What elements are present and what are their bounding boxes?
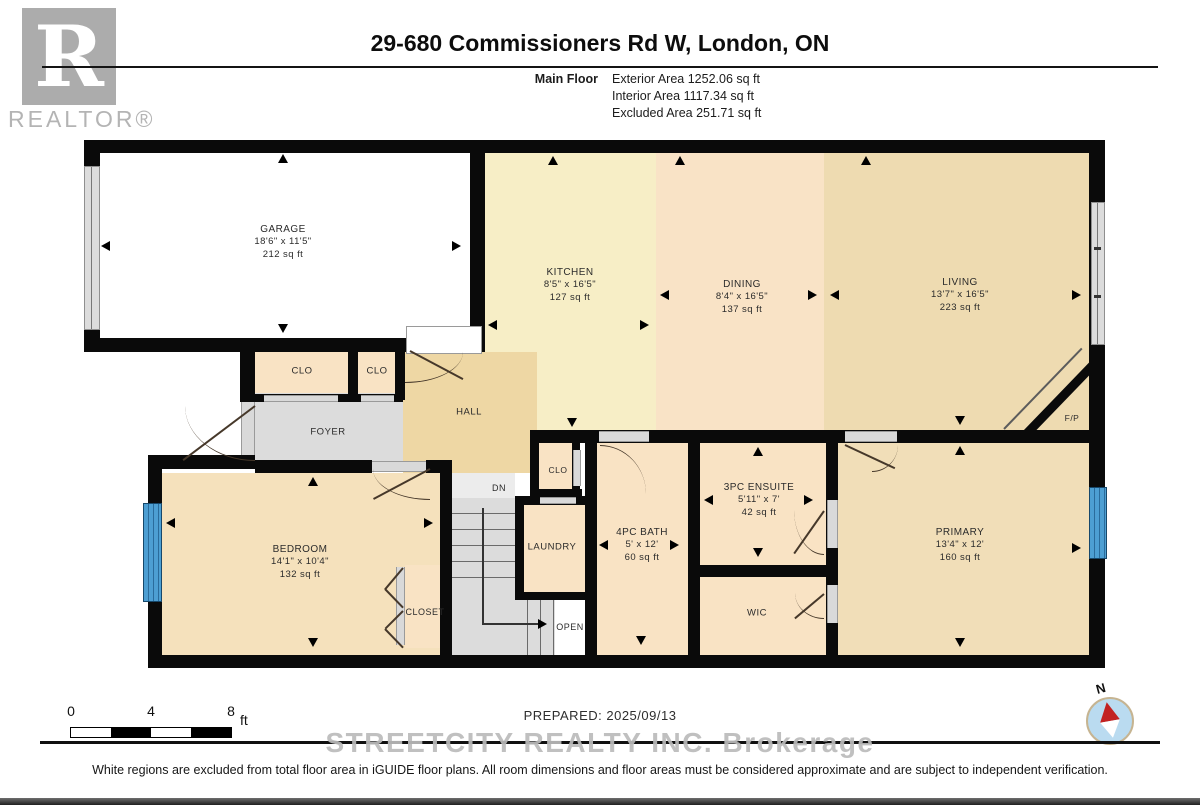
front-door-arc bbox=[185, 406, 255, 461]
dimension-arrow bbox=[675, 156, 685, 165]
dimension-arrow bbox=[704, 495, 713, 505]
dimension-arrow bbox=[278, 324, 288, 333]
dimension-arrow bbox=[670, 540, 679, 550]
dimension-arrow bbox=[808, 290, 817, 300]
header-divider bbox=[42, 66, 1158, 68]
label-foyer: FOYER bbox=[310, 427, 345, 438]
wall bbox=[440, 460, 452, 655]
dimension-arrow bbox=[955, 638, 965, 647]
realtor-logo-text: REALTOR® bbox=[8, 106, 155, 133]
living-window-line bbox=[1097, 203, 1098, 344]
dimension-arrow bbox=[955, 416, 965, 425]
dimension-arrow bbox=[636, 636, 646, 645]
room-label-primary: PRIMARY 13'4" x 12' 160 sq ft bbox=[936, 526, 985, 564]
dimension-arrow bbox=[424, 518, 433, 528]
excluded-area: Excluded Area 251.71 sq ft bbox=[612, 106, 761, 120]
closet-door-opening bbox=[361, 395, 394, 402]
living-window-tick bbox=[1094, 247, 1101, 250]
room-label-dining: DINING 8'4" x 16'5" 137 sq ft bbox=[716, 278, 768, 316]
label-closet: CLOSET bbox=[405, 607, 444, 617]
ensuite-door-opening bbox=[827, 500, 838, 548]
dimension-arrow bbox=[308, 638, 318, 647]
primary-window bbox=[1089, 487, 1107, 559]
bath-door-opening bbox=[599, 431, 649, 442]
dimension-arrow bbox=[1072, 543, 1081, 553]
label-clo3: CLO bbox=[549, 465, 568, 475]
interior-area: Interior Area 1117.34 sq ft bbox=[612, 89, 754, 103]
stairs-direction-line bbox=[482, 508, 484, 625]
label-laundry: LAUNDRY bbox=[528, 542, 577, 553]
room-label-garage: GARAGE 18'6" x 11'5" 212 sq ft bbox=[254, 223, 311, 261]
room-label-kitchen: KITCHEN 8'5" x 16'5" 127 sq ft bbox=[544, 266, 596, 304]
wall bbox=[255, 460, 372, 473]
wall bbox=[515, 505, 524, 592]
clo-door-opening bbox=[573, 450, 581, 486]
label-clo2: CLO bbox=[366, 366, 387, 377]
label-wic: WIC bbox=[747, 608, 767, 619]
dimension-arrow bbox=[548, 156, 558, 165]
label-clo1: CLO bbox=[291, 366, 312, 377]
room-label-living: LIVING 13'7" x 16'5" 223 sq ft bbox=[931, 276, 989, 314]
dimension-arrow bbox=[488, 320, 497, 330]
wall bbox=[826, 443, 838, 655]
label-hall: HALL bbox=[456, 407, 482, 418]
dimension-arrow bbox=[804, 495, 813, 505]
laundry-door-opening bbox=[540, 497, 576, 504]
wall bbox=[688, 443, 700, 655]
dimension-arrow bbox=[861, 156, 871, 165]
stairs-direction-line bbox=[482, 623, 538, 625]
floor-label: Main Floor bbox=[450, 72, 598, 86]
dimension-arrow bbox=[101, 241, 110, 251]
stairs-direction-arrow bbox=[538, 619, 547, 629]
wall bbox=[700, 565, 826, 577]
wall bbox=[148, 655, 1105, 668]
wall bbox=[395, 352, 405, 400]
dimension-arrow bbox=[599, 540, 608, 550]
prepared-date: PREPARED: 2025/09/13 bbox=[0, 708, 1200, 723]
room-label-ensuite: 3PC ENSUITE 5'11" x 7' 42 sq ft bbox=[724, 481, 795, 519]
garage-entry-landing bbox=[406, 326, 482, 354]
label-open: OPEN bbox=[556, 622, 584, 632]
room-label-bath: 4PC BATH 5' x 12' 60 sq ft bbox=[616, 526, 668, 564]
dimension-arrow bbox=[955, 446, 965, 455]
wall bbox=[84, 140, 100, 168]
garage-door-line bbox=[91, 167, 92, 329]
dimension-arrow bbox=[660, 290, 669, 300]
dimension-arrow bbox=[753, 447, 763, 456]
floor-plan-page: R REALTOR® 29-680 Commissioners Rd W, Lo… bbox=[0, 0, 1200, 805]
dimension-arrow bbox=[308, 477, 318, 486]
dimension-arrow bbox=[830, 290, 839, 300]
wall bbox=[348, 352, 358, 400]
primary-door-opening bbox=[845, 431, 897, 442]
closet-door-opening bbox=[264, 395, 338, 402]
label-fireplace: F/P bbox=[1065, 413, 1080, 423]
dimension-arrow bbox=[452, 241, 461, 251]
dimension-arrow bbox=[166, 518, 175, 528]
disclaimer-text: White regions are excluded from total fl… bbox=[0, 763, 1200, 777]
wall bbox=[515, 592, 597, 600]
wall bbox=[470, 140, 485, 352]
living-window-tick bbox=[1094, 295, 1101, 298]
label-dn: DN bbox=[492, 483, 506, 493]
wic-door-opening bbox=[827, 585, 838, 623]
dimension-arrow bbox=[1072, 290, 1081, 300]
wall bbox=[85, 140, 1105, 153]
page-title: 29-680 Commissioners Rd W, London, ON bbox=[0, 30, 1200, 57]
bedroom-window bbox=[143, 503, 162, 602]
wall bbox=[585, 443, 597, 655]
dimension-arrow bbox=[567, 418, 577, 427]
living-window bbox=[1091, 202, 1105, 345]
bottom-bar bbox=[0, 798, 1200, 805]
dimension-arrow bbox=[278, 154, 288, 163]
exterior-area: Exterior Area 1252.06 sq ft bbox=[612, 72, 760, 86]
garage-door bbox=[84, 166, 100, 330]
brokerage-watermark: STREETCITY REALTY INC. Brokerage bbox=[0, 727, 1200, 759]
dimension-arrow bbox=[640, 320, 649, 330]
compass-north-label: N bbox=[1094, 680, 1107, 697]
dimension-arrow bbox=[753, 548, 763, 557]
room-label-bedroom: BEDROOM 14'1" x 10'4" 132 sq ft bbox=[271, 543, 329, 581]
